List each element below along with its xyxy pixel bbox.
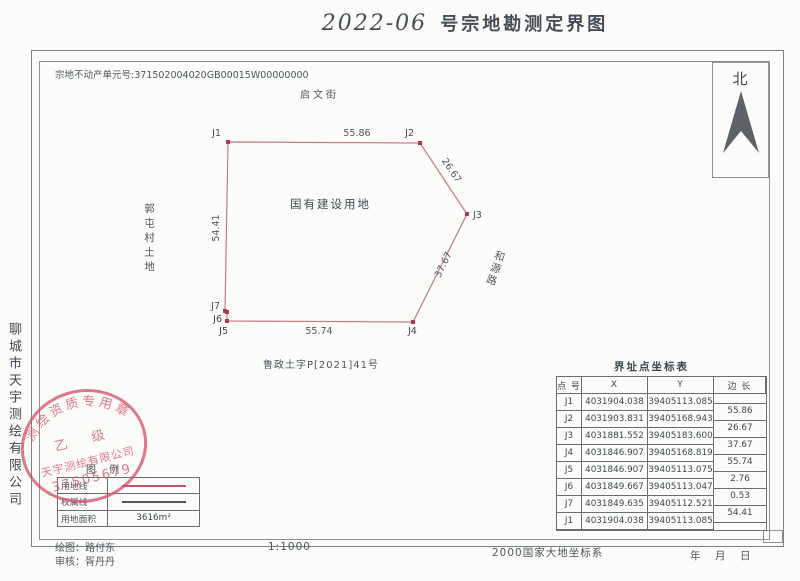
- boundary-point-label: J3: [472, 210, 482, 221]
- edge-length-label: 37.67: [433, 250, 455, 279]
- table-cell: 39405183.600: [648, 428, 714, 445]
- side-length-divider: [714, 522, 766, 523]
- table-cell: 39405113.085: [648, 394, 714, 411]
- coordinate-table: 55.8626.6737.6755.742.760.5354.41 点 号XY边…: [556, 376, 767, 531]
- table-cell: 4031846.907: [582, 462, 648, 479]
- side-length-value: 55.86: [714, 404, 766, 419]
- parcel-use-label: 国有建设用地: [290, 196, 371, 212]
- table-cell: 39405113.085: [648, 513, 714, 530]
- side-length-value: 37.67: [714, 438, 766, 453]
- table-cell: 4031846.907: [582, 445, 648, 462]
- table-cell: J1: [557, 394, 582, 411]
- coordinate-table-title: 界址点坐标表: [614, 359, 689, 374]
- drawn-by-line: 绘图：路付东: [55, 539, 115, 554]
- street-label-north: 启文街: [300, 86, 339, 101]
- table-header: 边 长: [714, 377, 766, 394]
- date-placeholder: 年 月 日: [690, 548, 753, 563]
- edge-length-label: 55.86: [343, 128, 370, 139]
- table-cell: 39405113.075: [648, 462, 714, 479]
- scanned-survey-document: 2022-06 号宗地勘测定界图 宗地不动产单元号:371502004020GB…: [0, 0, 800, 581]
- adjacent-land-label-west: 郭屯村土地: [142, 203, 157, 276]
- boundary-point-label: J2: [404, 128, 414, 139]
- edge-length-label: 26.67: [439, 156, 463, 185]
- side-length-value: 55.74: [714, 455, 766, 470]
- table-cell: J3: [557, 428, 582, 445]
- table-cell: 4031904.038: [582, 513, 648, 530]
- edge-length-label: 54.41: [211, 214, 222, 241]
- side-length-column: 55.8626.6737.6755.742.760.5354.41: [714, 377, 766, 530]
- table-header: Y: [648, 377, 714, 394]
- table-cell: J5: [557, 462, 582, 479]
- table-cell: 39405168.943: [648, 411, 714, 428]
- table-header: 点 号: [557, 377, 582, 394]
- boundary-point-marker: [225, 319, 229, 323]
- table-cell: J6: [557, 479, 582, 496]
- table-cell: 4031904.038: [582, 394, 648, 411]
- coordinate-system: 2000国家大地坐标系: [492, 545, 603, 560]
- boundary-point-marker: [223, 309, 227, 313]
- side-length-value: 0.53: [714, 489, 766, 504]
- checked-by-name: 胥丹丹: [85, 557, 115, 568]
- table-cell: J2: [557, 411, 582, 428]
- boundary-point-marker: [226, 140, 230, 144]
- checked-by-line: 审核：胥丹丹: [55, 553, 115, 568]
- boundary-point-marker: [418, 141, 422, 145]
- boundary-point-marker: [465, 212, 469, 216]
- table-cell: 4031849.667: [582, 479, 648, 496]
- boundary-point-label: J4: [407, 326, 417, 337]
- boundary-point-marker: [411, 320, 415, 324]
- edge-length-label: 55.74: [305, 326, 332, 337]
- boundary-point-label: J5: [218, 326, 228, 337]
- table-cell: 4031903.831: [582, 411, 648, 428]
- table-cell: 39405113.047: [648, 479, 714, 496]
- table-header: X: [582, 377, 648, 394]
- boundary-point-label: J1: [211, 128, 221, 139]
- boundary-point-label: J6: [212, 314, 222, 325]
- map-scale: 1:1000: [268, 541, 311, 553]
- boundary-point-label: J7: [210, 301, 220, 312]
- table-cell: 39405168.819: [648, 445, 714, 462]
- table-cell: 39405112.521: [648, 496, 714, 513]
- parcel-boundary: [225, 142, 467, 322]
- table-cell: 4031881.552: [582, 428, 648, 445]
- side-length-value: 54.41: [714, 506, 766, 521]
- red-seal-stamp: 测绘资质专用章 乙 级 天宇测绘有限公司 37505679: [12, 380, 162, 520]
- side-length-value: 26.67: [714, 421, 766, 436]
- table-cell: J4: [557, 445, 582, 462]
- company-name-vertical: 聊城市天宇测绘有限公司: [4, 322, 23, 509]
- table-cell: J1: [557, 513, 582, 530]
- checked-by-label: 审核：: [55, 557, 85, 568]
- side-length-value: 2.76: [714, 472, 766, 487]
- table-cell: 4031849.635: [582, 496, 648, 513]
- approval-document-number: 鲁政土字P[2021]41号: [263, 356, 379, 371]
- table-cell: J7: [557, 496, 582, 513]
